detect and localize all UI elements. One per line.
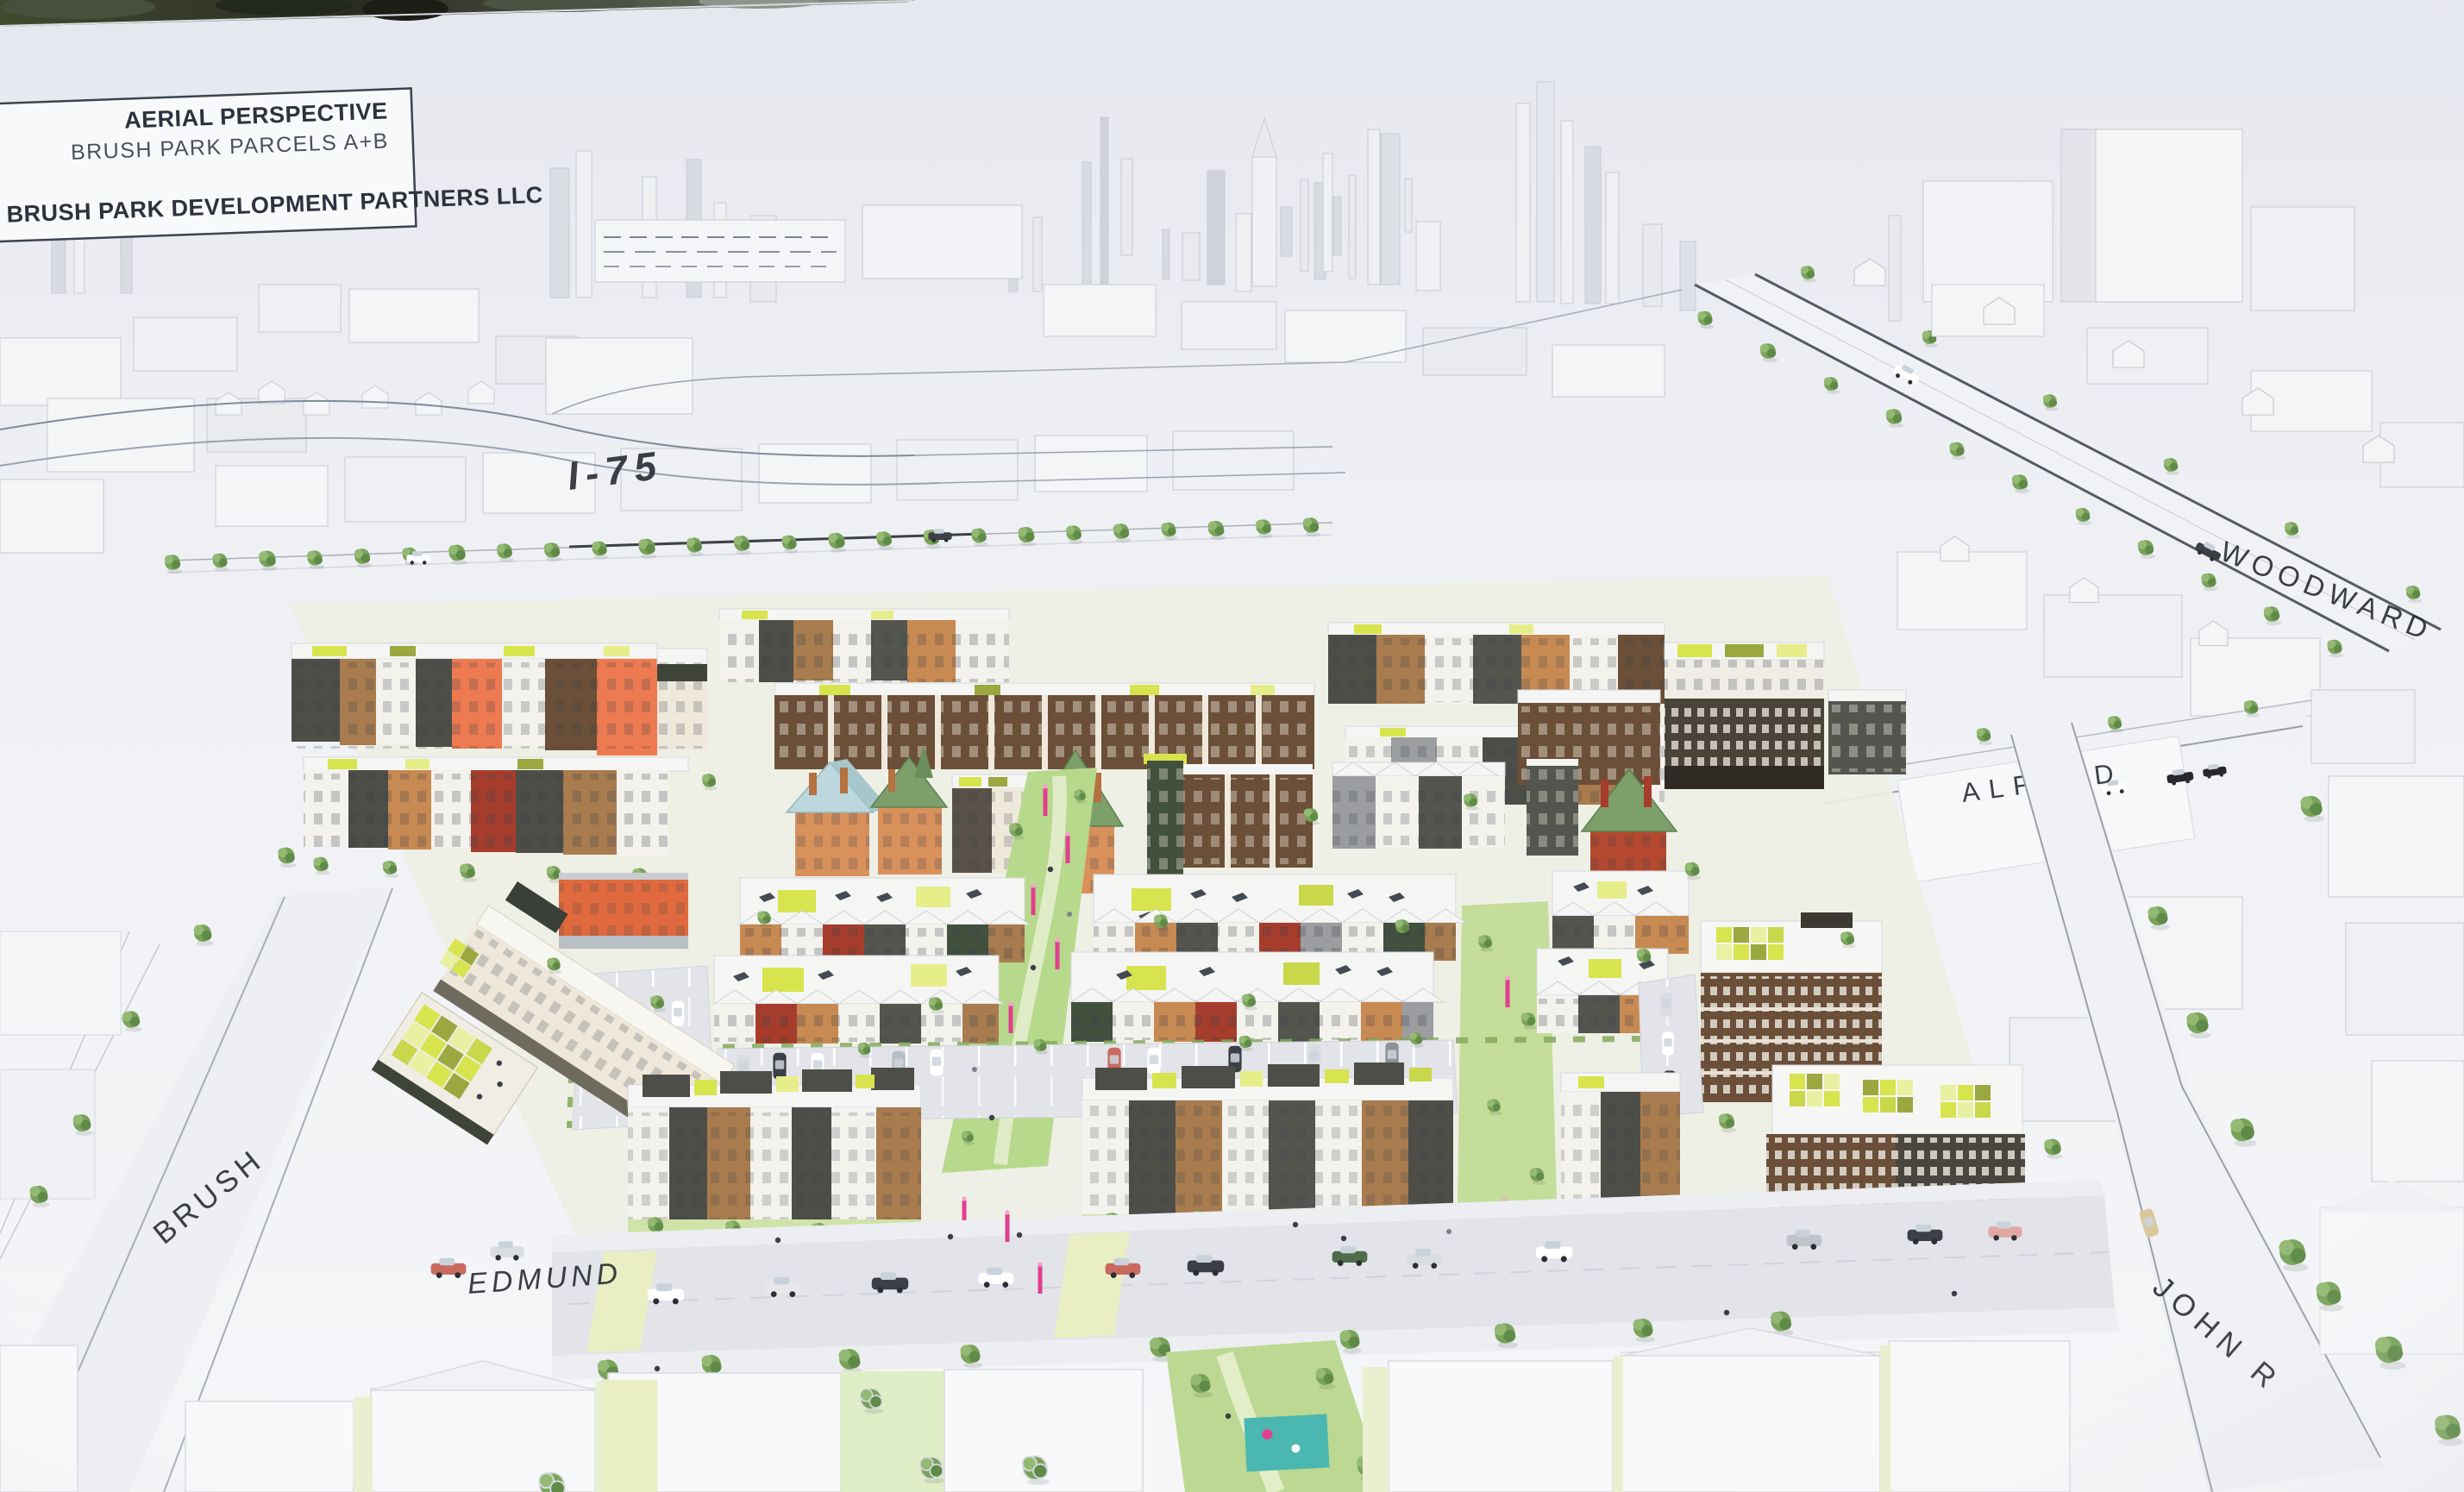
aerial-perspective-rendering: I-75 WOODWARD: [0, 0, 2464, 1492]
rendering-board-photo: I-75 WOODWARD: [0, 0, 2464, 1492]
